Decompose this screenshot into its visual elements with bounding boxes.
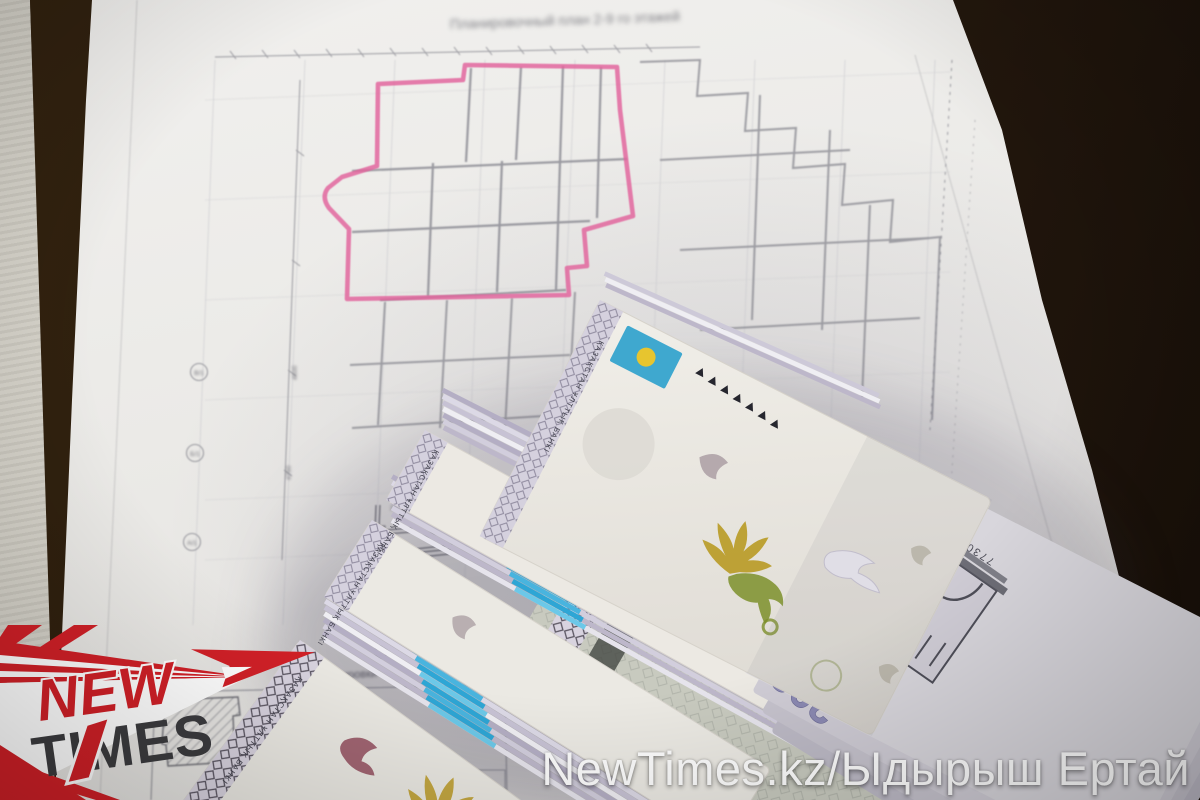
photo-credit-watermark: NewTimes.kz/Ыдырыш Ертай	[541, 741, 1190, 796]
newtimes-logo: NEW TIMES	[0, 625, 400, 800]
photo-scene: 200 730 400 1180 1340 3030 100 1150 750 …	[0, 0, 1200, 800]
